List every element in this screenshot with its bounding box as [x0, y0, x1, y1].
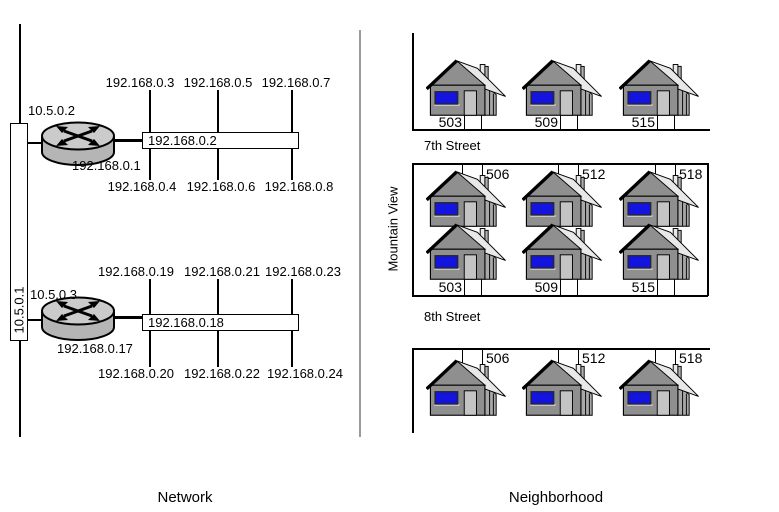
- house-number: 509: [522, 280, 558, 294]
- host-drop-line: [217, 331, 219, 367]
- block-edge-line: [707, 163, 709, 296]
- host-ip-label: 192.168.0.3: [100, 76, 180, 89]
- house-icon: [426, 57, 510, 119]
- street-line-8th: [412, 348, 710, 350]
- street-name-8th: 8th Street: [424, 309, 480, 324]
- house-number: 515: [619, 280, 655, 294]
- host-drop-line: [291, 279, 293, 314]
- host-ip-label: 192.168.0.20: [93, 367, 179, 380]
- house-number: 503: [426, 115, 462, 129]
- host-ip-label: 192.168.0.22: [179, 367, 265, 380]
- host-ip-label: 192.168.0.21: [179, 265, 265, 278]
- block-edge-line: [412, 348, 414, 433]
- network-analogy-diagram: 10.5.0.1 10.5.0.2 192.168.0.1 192.168.0.…: [0, 0, 779, 512]
- host-ip-label: 192.168.0.23: [260, 265, 346, 278]
- host-ip-label: 192.168.0.19: [93, 265, 179, 278]
- host-drop-line: [149, 279, 151, 314]
- network-caption: Network: [120, 489, 250, 506]
- house-icon: [619, 357, 703, 419]
- host-ip-label: 192.168.0.8: [259, 180, 339, 193]
- house-icon: [619, 57, 703, 119]
- host-ip-label: 192.168.0.6: [181, 180, 261, 193]
- block-edge-line: [412, 163, 414, 296]
- block-edge-line: [412, 33, 414, 130]
- house-icon: [426, 357, 510, 419]
- house-number: 503: [426, 280, 462, 294]
- host-drop-line: [291, 331, 293, 367]
- host-ip-label: 192.168.0.4: [102, 180, 182, 193]
- segment1-ip-label: 192.168.0.2: [148, 133, 217, 148]
- host-ip-label: 192.168.0.7: [256, 76, 336, 89]
- house-icon: [522, 221, 606, 283]
- neighborhood-caption: Neighborhood: [476, 489, 636, 506]
- host-ip-label: 192.168.0.24: [262, 367, 348, 380]
- house-icon: [619, 221, 703, 283]
- house-icon: [522, 357, 606, 419]
- router2-icon: [40, 296, 116, 346]
- street-name-7th: 7th Street: [424, 138, 480, 153]
- block-edge-line: [412, 295, 708, 297]
- house-icon: [426, 221, 510, 283]
- house-number: 509: [522, 115, 558, 129]
- host-drop-line: [217, 90, 219, 132]
- host-drop-line: [217, 279, 219, 314]
- house-number: 515: [619, 115, 655, 129]
- host-drop-line: [291, 90, 293, 132]
- host-drop-line: [149, 149, 151, 180]
- router2-lan-ip-label: 192.168.0.17: [57, 342, 133, 355]
- host-drop-line: [149, 331, 151, 367]
- host-drop-line: [149, 90, 151, 132]
- section-divider-line: [359, 30, 361, 437]
- house-icon: [522, 57, 606, 119]
- host-drop-line: [217, 149, 219, 180]
- router2-wan-ip-label: 10.5.0.3: [30, 288, 77, 301]
- host-ip-label: 192.168.0.5: [178, 76, 258, 89]
- segment1-bus: 192.168.0.2: [142, 132, 299, 149]
- router1-wan-ip-label: 10.5.0.2: [28, 104, 75, 117]
- area-label: Mountain View: [386, 186, 401, 271]
- segment2-bus: 192.168.0.18: [142, 314, 299, 331]
- host-drop-line: [291, 149, 293, 180]
- router1-lan-ip-label: 192.168.0.1: [72, 159, 141, 172]
- segment2-ip-label: 192.168.0.18: [148, 315, 224, 330]
- backbone-ip-label: 10.5.0.1: [12, 287, 27, 334]
- block-edge-line: [412, 163, 708, 165]
